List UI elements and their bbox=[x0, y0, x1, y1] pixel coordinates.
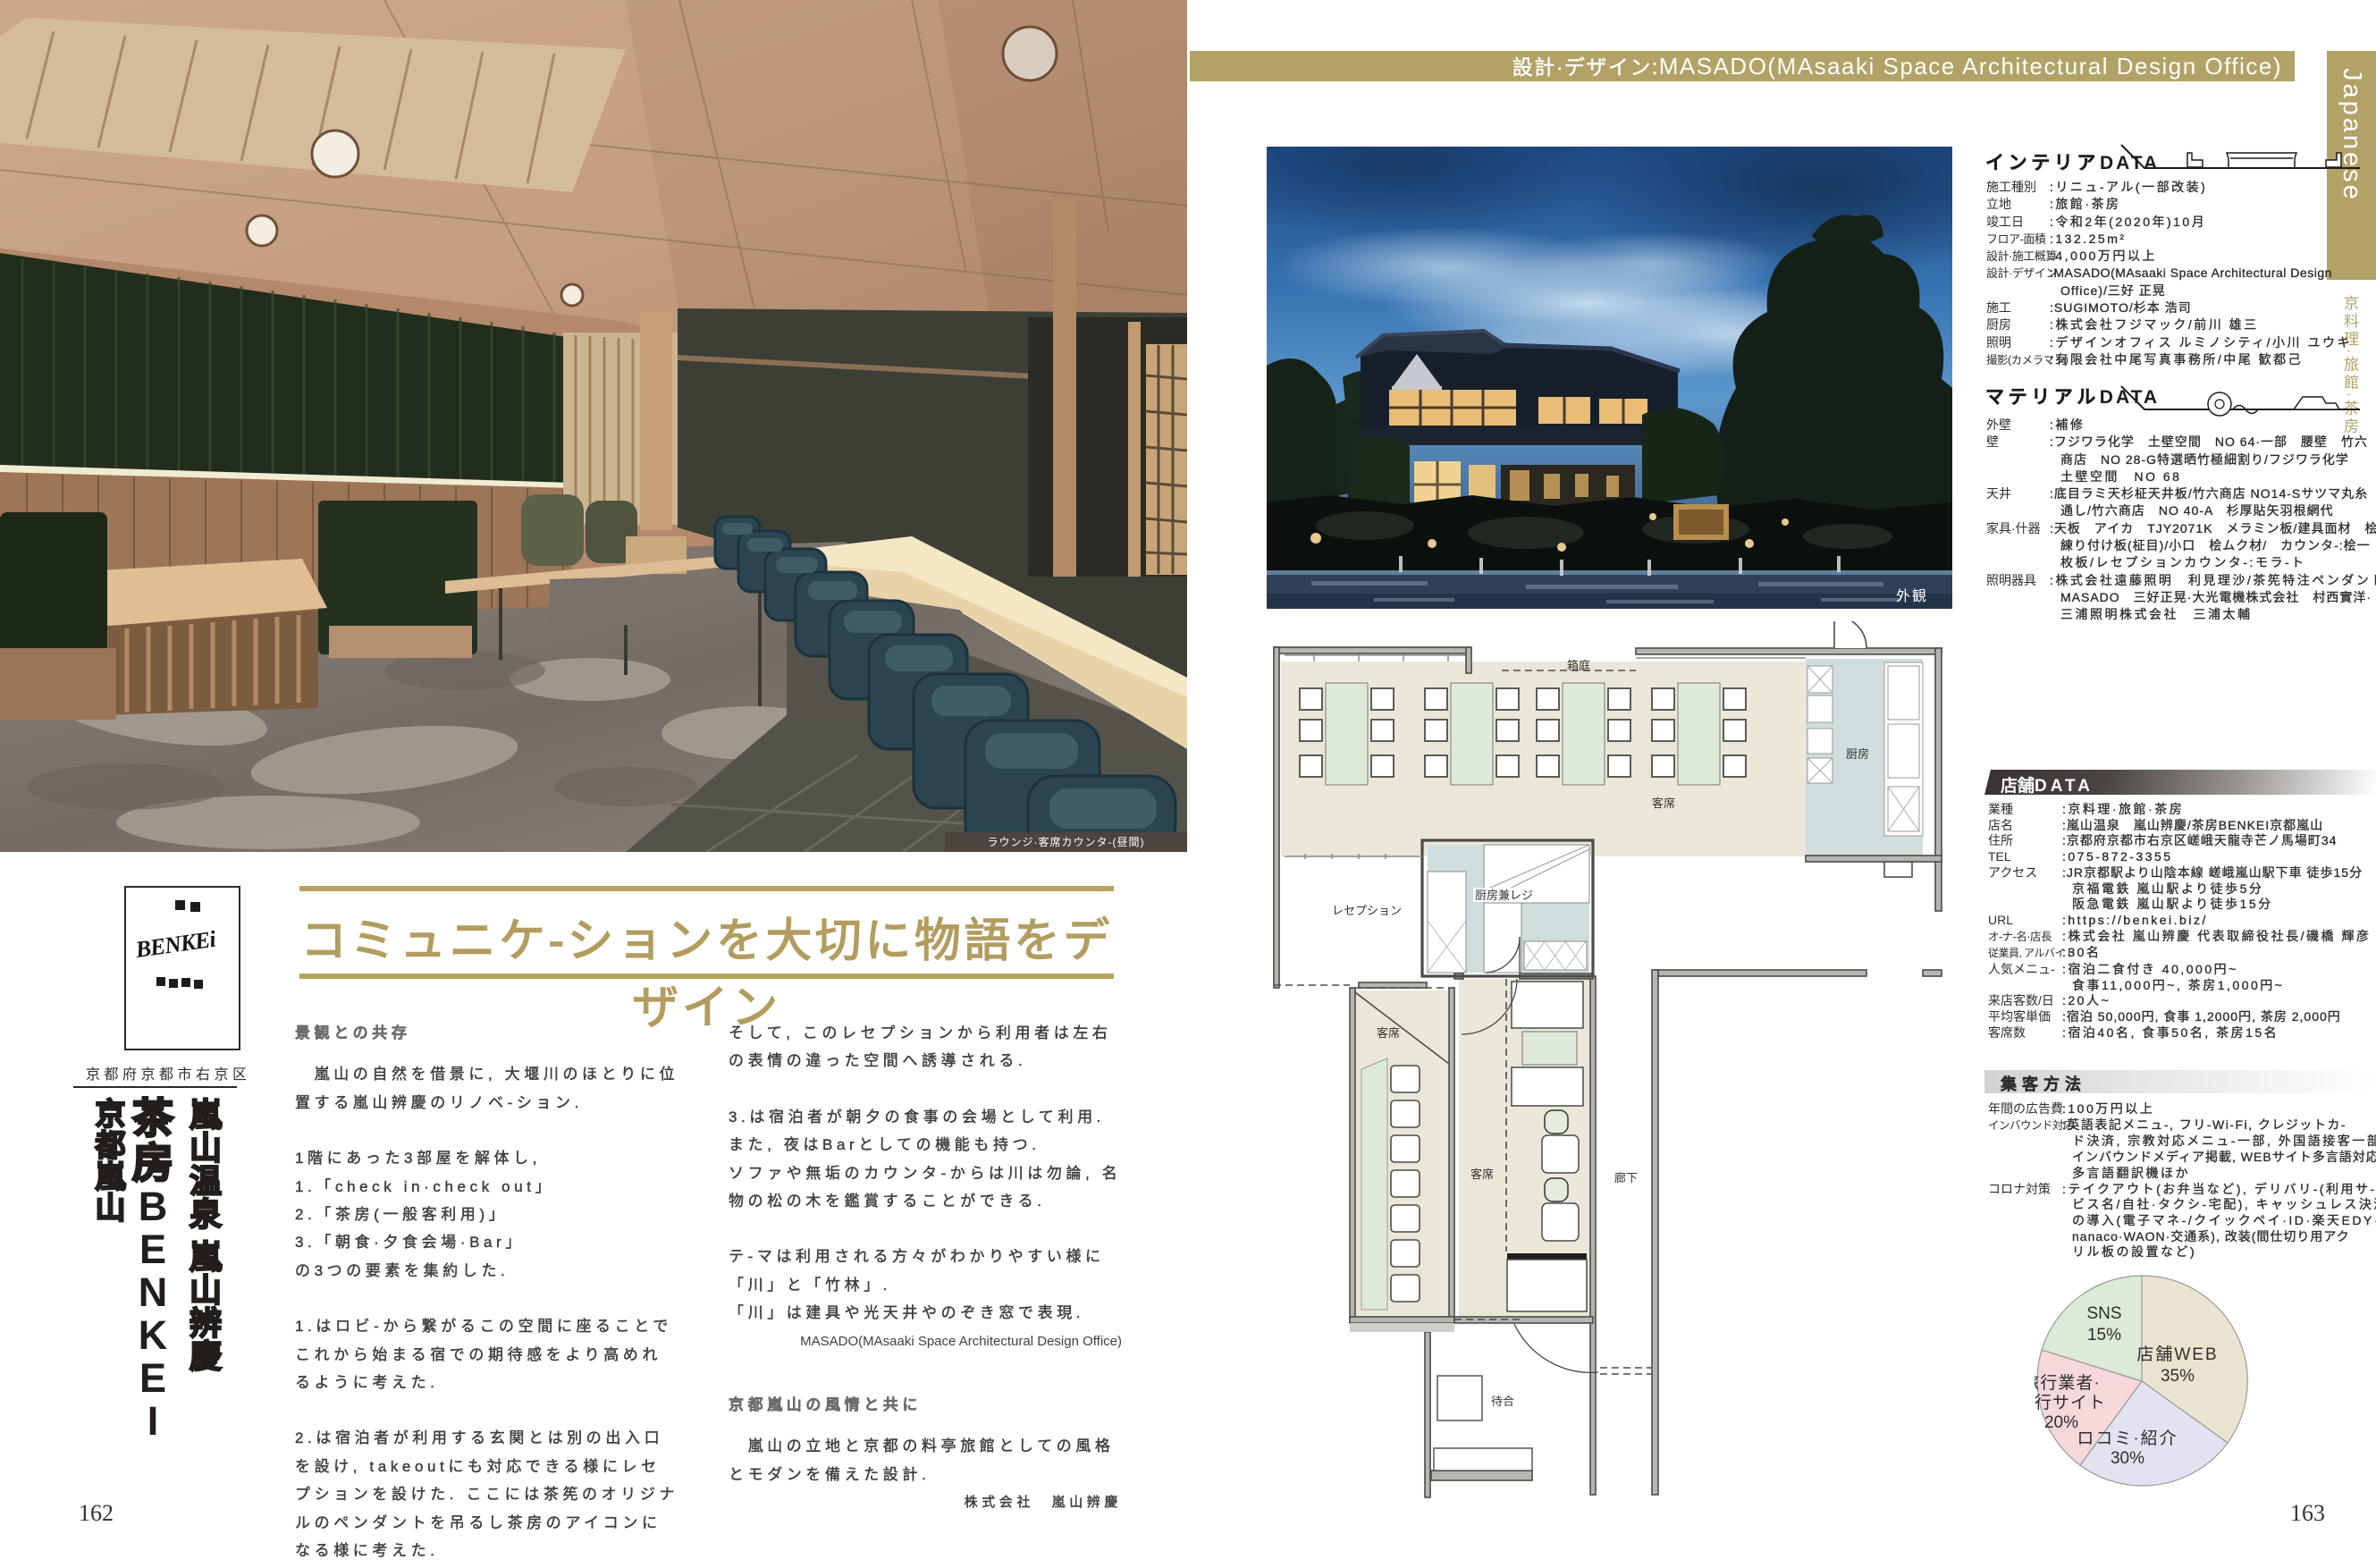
svg-text:旅行サイト: 旅行サイト bbox=[2035, 1393, 2106, 1412]
svg-text:30%: 30% bbox=[2111, 1449, 2144, 1468]
svg-text:35%: 35% bbox=[2161, 1367, 2195, 1386]
svg-text:待合: 待合 bbox=[1491, 1395, 1514, 1408]
svg-text:店舗WEB: 店舗WEB bbox=[2136, 1345, 2218, 1364]
svg-text:厨房兼レジ: 厨房兼レジ bbox=[1475, 889, 1533, 902]
svg-text:ロコミ·紹介: ロコミ·紹介 bbox=[2077, 1429, 2178, 1448]
svg-text:客席: 客席 bbox=[1377, 1026, 1400, 1040]
svg-text:箱庭: 箱庭 bbox=[1567, 659, 1590, 672]
svg-text:廊下: 廊下 bbox=[1614, 1171, 1638, 1184]
svg-text:BENKEi: BENKEi bbox=[133, 926, 218, 964]
svg-text:旅行業者·: 旅行業者· bbox=[2035, 1373, 2101, 1393]
svg-text:客席: 客席 bbox=[1652, 797, 1675, 810]
svg-text:レセプション: レセプション bbox=[1332, 904, 1402, 917]
svg-text:厨房: 厨房 bbox=[1846, 747, 1869, 761]
svg-text:客席: 客席 bbox=[1470, 1168, 1494, 1181]
svg-text:15%: 15% bbox=[2087, 1326, 2121, 1345]
svg-text:20%: 20% bbox=[2044, 1413, 2078, 1432]
svg-text:外観: 外観 bbox=[1896, 588, 1928, 604]
svg-text:SNS: SNS bbox=[2086, 1304, 2121, 1323]
